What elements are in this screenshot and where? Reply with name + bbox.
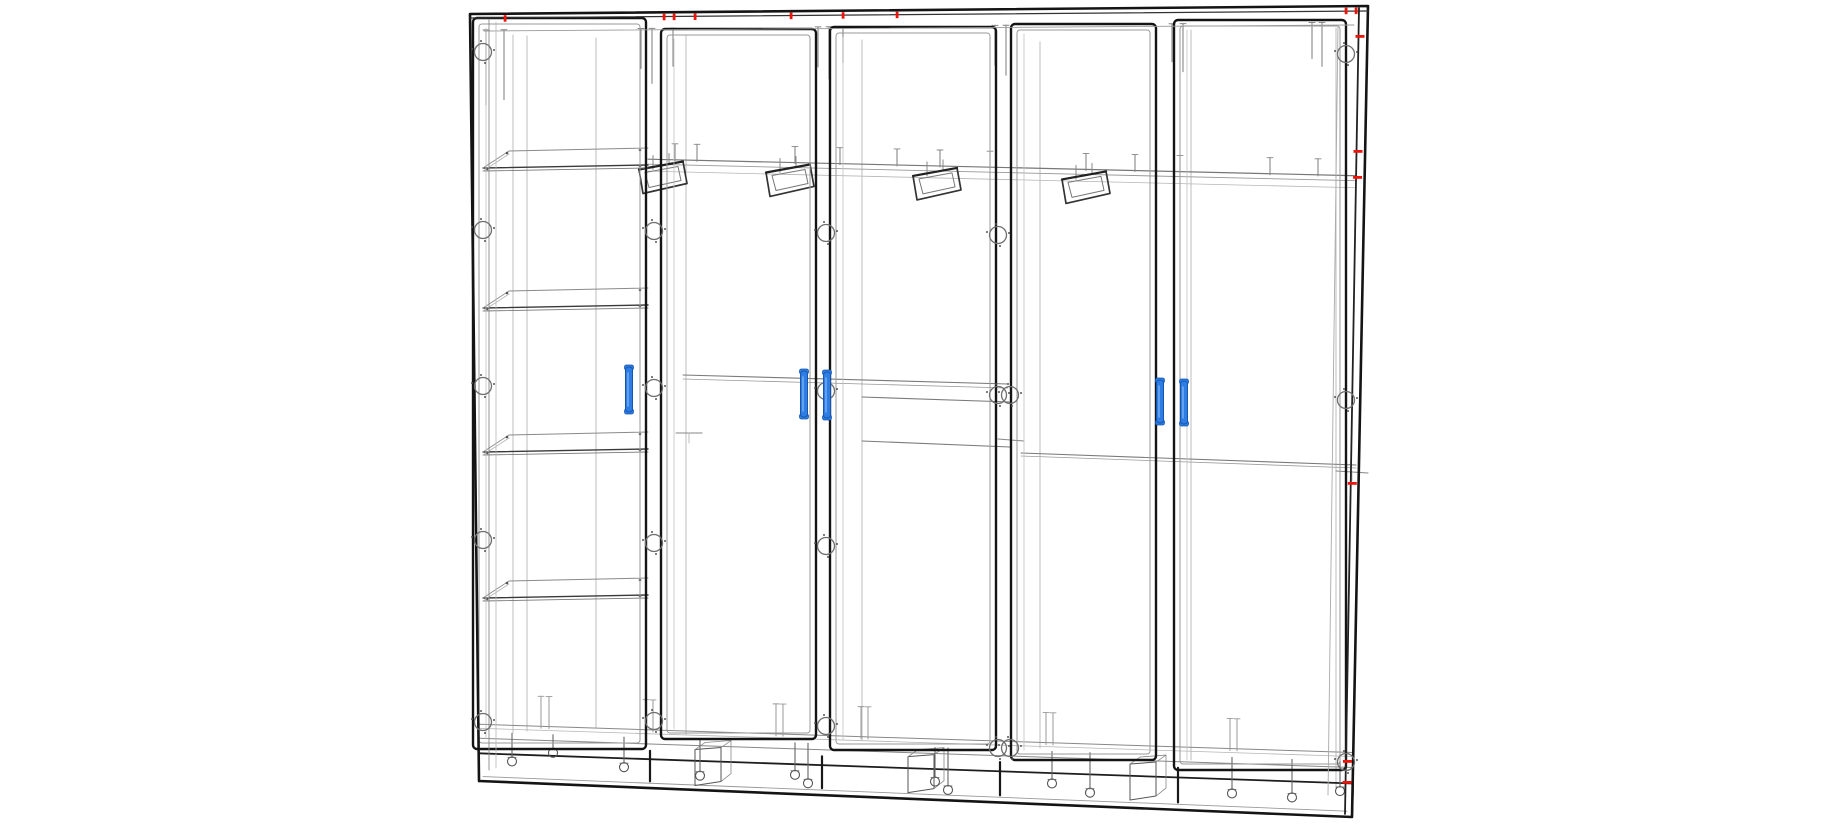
door-handle-3 (823, 370, 832, 420)
hanging-rail (648, 144, 1356, 188)
door-5 (1174, 20, 1346, 770)
door-handle-5 (1180, 379, 1189, 426)
door-2 (661, 29, 816, 739)
door-4 (1011, 24, 1156, 760)
cabinet-frame (470, 6, 1368, 817)
shelf-2 (483, 288, 648, 311)
top-dowel-pins (483, 22, 1325, 104)
door-3 (830, 27, 996, 750)
shelf-1 (483, 148, 648, 171)
cad-viewport[interactable] (0, 0, 1840, 826)
door-handle-1 (625, 365, 634, 414)
door-handle-4 (1156, 378, 1165, 425)
shelf-4 (483, 578, 648, 601)
hinge-column (471, 40, 495, 734)
hinge-column (814, 221, 838, 738)
wardrobe-drawing[interactable] (0, 0, 1840, 826)
shelf-3 (483, 432, 648, 455)
door-handle-2 (800, 369, 809, 419)
door-1 (473, 18, 646, 749)
mid-rails (676, 375, 1368, 481)
back-panel-lines (513, 28, 1336, 788)
